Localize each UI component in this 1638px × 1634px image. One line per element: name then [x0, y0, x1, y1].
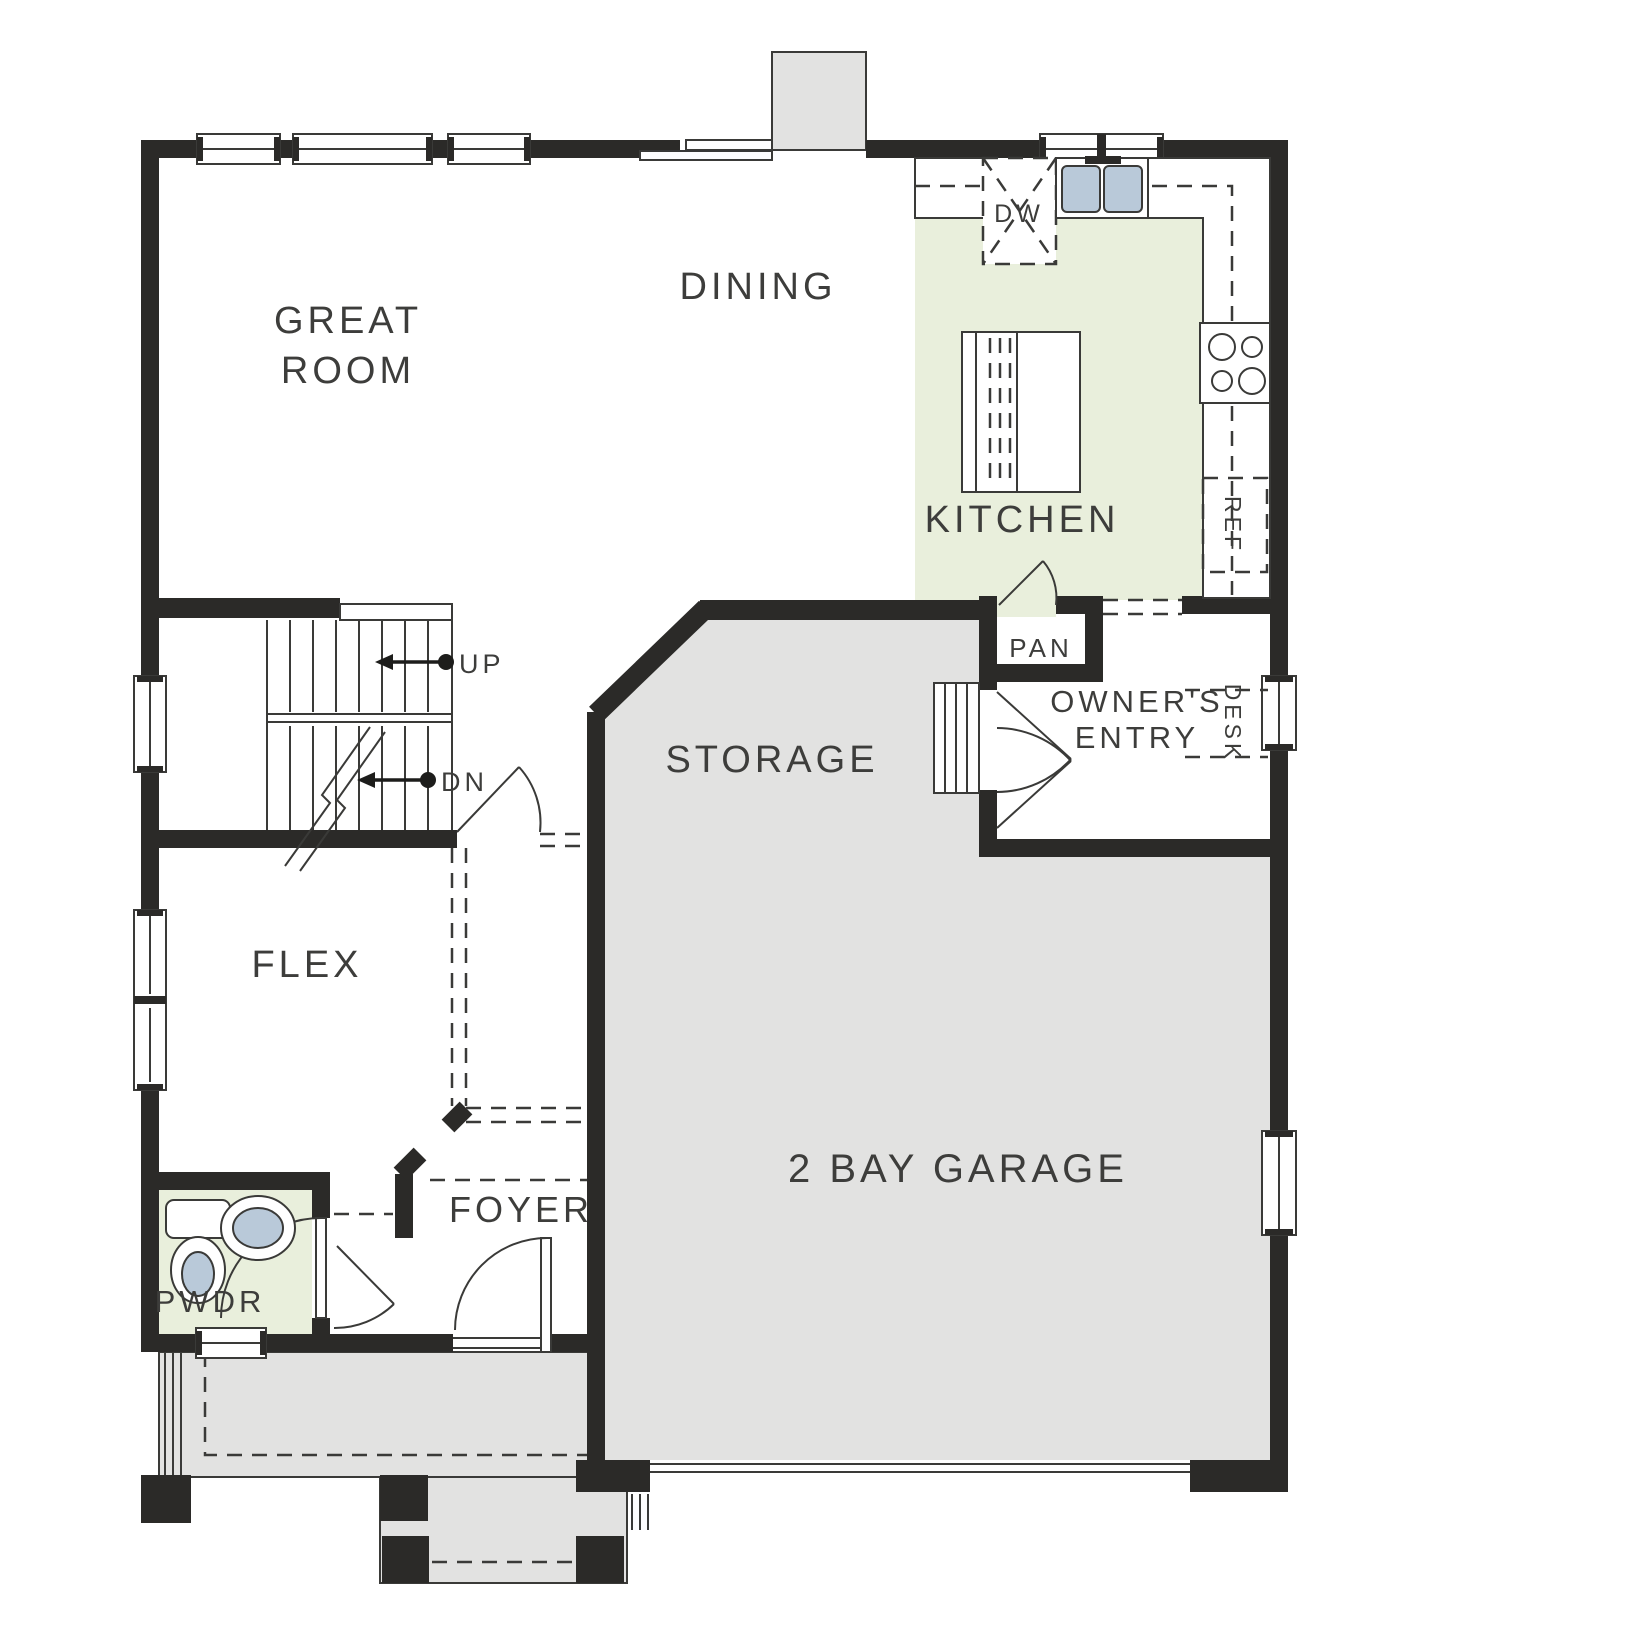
- cooktop: [1200, 323, 1270, 403]
- stair-up-label: UP: [459, 649, 505, 679]
- front-door: [453, 1238, 551, 1352]
- room-label-garage: 2 BAY GARAGE: [788, 1147, 1128, 1191]
- room-label-pwdr: PWDR: [155, 1284, 266, 1319]
- stair-dn-arrow: DN: [357, 767, 488, 797]
- window: [197, 134, 280, 164]
- porch-post: [382, 1536, 429, 1583]
- dishwasher: DW: [983, 158, 1056, 264]
- porch-post: [380, 1475, 428, 1521]
- window: [448, 134, 530, 164]
- garage-door: [650, 1464, 1190, 1472]
- window: [196, 1328, 266, 1358]
- window: [1262, 676, 1296, 750]
- window: [1262, 1131, 1296, 1235]
- porch-post: [576, 1536, 624, 1583]
- room-label-dining: DINING: [680, 266, 837, 308]
- coat-closet: [334, 1214, 394, 1328]
- floor-plan-drawing: UP DN DW: [0, 0, 1638, 1634]
- dishwasher-label: DW: [994, 200, 1044, 228]
- room-kitchen-floor-door-sliver: [997, 600, 1056, 617]
- kitchen-sink: [1056, 156, 1148, 218]
- room-label-kitchen: KITCHEN: [925, 499, 1120, 541]
- room-label-owners-entry: ENTRY: [1075, 720, 1200, 755]
- refrigerator-label: REF: [1220, 496, 1246, 554]
- porch-post: [141, 1475, 191, 1523]
- kitchen-counter: [915, 158, 985, 218]
- room-label-pan: PAN: [1009, 633, 1073, 663]
- room-label-great-room: ROOM: [281, 350, 415, 392]
- porch-floor: [159, 1352, 592, 1477]
- room-label-owners-entry: OWNER'S: [1050, 684, 1223, 719]
- window: [134, 910, 166, 1090]
- window: [293, 134, 432, 164]
- stair-railing: [340, 604, 452, 620]
- bathroom-sink: [221, 1196, 295, 1260]
- room-label-flex: FLEX: [251, 944, 362, 986]
- window: [134, 676, 166, 772]
- stair-up-arrow: UP: [375, 649, 505, 679]
- room-label-storage: STORAGE: [665, 739, 878, 781]
- desk-label: DESK: [1220, 684, 1246, 763]
- garage-steps: [934, 683, 979, 793]
- room-label-foyer: FOYER: [449, 1189, 593, 1230]
- room-label-great-room: GREAT: [274, 300, 422, 342]
- stair-dn-label: DN: [441, 767, 488, 797]
- kitchen-island: [962, 332, 1080, 492]
- floor-plan-page: UP DN DW: [0, 0, 1638, 1634]
- chimney: [772, 52, 866, 150]
